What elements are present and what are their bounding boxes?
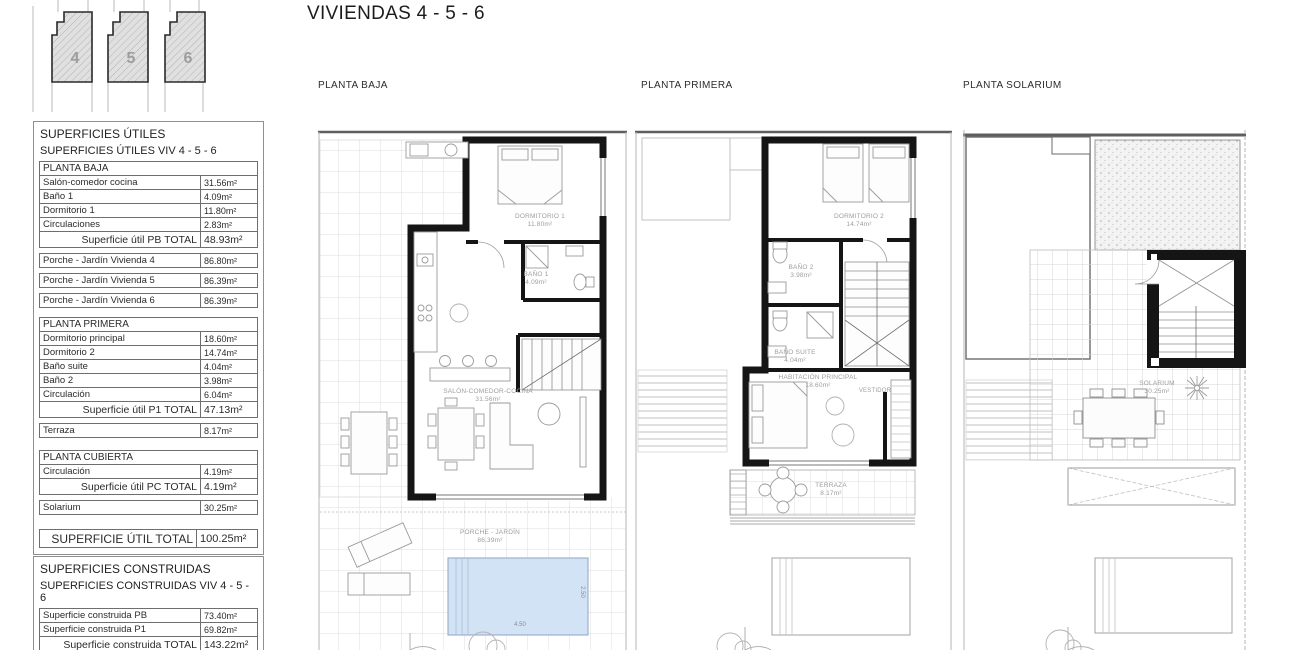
room-area: 4.04m² [784, 357, 806, 364]
room-label: HABITACIÓN PRINCIPAL [779, 372, 858, 381]
table-total-row: Superficie construida TOTAL143.22m² [40, 636, 257, 650]
dining-table [438, 408, 474, 460]
table-row: Superficie construida PB73.40m² [40, 609, 257, 622]
room-area: 8.17m² [820, 490, 842, 497]
plan-title-solarium: PLANTA SOLARIUM [963, 80, 1062, 91]
outdoor-table [351, 412, 387, 474]
stair-bulkhead [1135, 250, 1246, 368]
table-row: Solarium30.25m² [40, 501, 257, 514]
table-row: Dormitorio 214.74m² [40, 345, 257, 359]
room-area: 31.56m² [475, 396, 501, 403]
table-row: Baño 23.98m² [40, 373, 257, 387]
garden-gate [745, 627, 771, 650]
pool: 4.50 2.50 [448, 558, 588, 635]
pool-outline [1095, 558, 1232, 633]
plan-title-baja: PLANTA BAJA [318, 80, 388, 91]
room-area: 86.39m² [477, 537, 503, 544]
pool-width-dim: 2.50 [579, 586, 585, 598]
floor-plan-primera: DORMITORIO 2 14.74m² BAÑO 2 3.98m² BAÑO … [635, 130, 953, 650]
planter [730, 470, 746, 515]
table-row: Baño 14.09m² [40, 189, 257, 203]
pergola [1068, 468, 1235, 505]
table-row: Dormitorio 111.80m² [40, 203, 257, 217]
plan-title-primera: PLANTA PRIMERA [641, 80, 733, 91]
floor-plan-solarium: SOLARIUM 30.25m² [963, 130, 1247, 650]
floor-plan-baja: 4.50 2.50 DORMITORIO 1 11.80m² BAÑO 1 4.… [318, 130, 628, 650]
unit-6-footprint [165, 12, 205, 82]
room-label: SALÓN-COMEDOR-COCINA [443, 386, 533, 395]
neighbor-roof-hatch [638, 370, 727, 452]
table-title: SUPERFICIES CONSTRUIDAS [39, 560, 258, 577]
room-area: 11.80m² [528, 221, 553, 228]
unit-4-number: 4 [71, 50, 80, 67]
roof-outline [730, 138, 763, 170]
site-plan: 4 5 6 [25, 0, 235, 112]
pool-outline [772, 558, 910, 635]
table-total-row: Superficie útil PC TOTAL4.19m² [40, 478, 257, 494]
room-area: 14.74m² [846, 221, 872, 228]
roof-outline [1052, 137, 1090, 154]
superficies-construidas-table: SUPERFICIES CONSTRUIDAS SUPERFICIES CONS… [33, 556, 264, 650]
bed [498, 146, 562, 204]
round-table [770, 477, 796, 503]
table-row: Circulación4.19m² [40, 464, 257, 478]
room-label: BAÑO 1 [523, 269, 548, 278]
room-area: 30.25m² [1144, 388, 1170, 395]
room-label: VESTIDOR [859, 388, 892, 394]
gravel-area [1095, 140, 1240, 250]
table-row: Circulaciones2.83m² [40, 217, 257, 231]
table-title: SUPERFICIES ÚTILES [39, 125, 258, 142]
double-bed [749, 382, 807, 448]
unit-6-number: 6 [184, 50, 193, 67]
table-row: Superficie construida P169.82m² [40, 622, 257, 636]
room-label: PORCHE - JARDÍN [460, 527, 520, 536]
table-row: Circulación6.04m² [40, 387, 257, 401]
table-row: Terraza8.17m² [40, 424, 257, 437]
table-row: Baño suite4.04m² [40, 359, 257, 373]
superficies-utiles-table: SUPERFICIES ÚTILES SUPERFICIES ÚTILES VI… [33, 121, 264, 555]
room-area: 4.09m² [525, 279, 547, 286]
table-row: PLANTA BAJA [40, 162, 257, 175]
stairs [522, 339, 601, 390]
table-subtitle: SUPERFICIES ÚTILES VIV 4 - 5 - 6 [39, 142, 258, 161]
tv-sideboard [580, 397, 586, 467]
table-row: Dormitorio principal18.60m² [40, 331, 257, 345]
stairs [845, 262, 909, 366]
plan-sheet: 4 5 6 VIVIENDAS 4 - 5 - 6 PLANTA BAJA PL… [0, 0, 1291, 650]
sun-lounger [348, 573, 410, 595]
table-row: PLANTA PRIMERA [40, 318, 257, 331]
table-row: Porche - Jardín Vivienda 486.80m² [40, 254, 257, 267]
table-row: Salón-comedor cocina31.56m² [40, 175, 257, 189]
table-row: PLANTA CUBIERTA [40, 451, 257, 464]
table-total-row: Superficie útil P1 TOTAL47.13m² [40, 401, 257, 417]
kitchen-island [430, 368, 510, 381]
solarium-table [1074, 389, 1164, 447]
kitchen-counter [414, 232, 437, 352]
roof-outline [642, 138, 730, 220]
terrace-steps [730, 518, 915, 524]
table-subtitle: SUPERFICIES CONSTRUIDAS VIV 4 - 5 - 6 [39, 577, 258, 608]
unit-4-footprint [52, 12, 92, 82]
table-row: Porche - Jardín Vivienda 586.39m² [40, 274, 257, 287]
pool-length-dim: 4.50 [514, 622, 526, 628]
room-label: DORMITORIO 1 [515, 213, 565, 220]
tree [717, 633, 751, 650]
unit-footprints [52, 12, 205, 82]
room-label: BAÑO SUITE [774, 347, 816, 356]
room-area: 18.60m² [805, 382, 831, 389]
room-label: TERRAZA [815, 482, 847, 489]
page-title: VIVIENDAS 4 - 5 - 6 [307, 3, 485, 25]
table-grand-total-row: SUPERFICIE ÚTIL TOTAL100.25m² [40, 530, 257, 547]
room-area: 3.98m² [790, 272, 812, 279]
unit-5-footprint [108, 12, 148, 82]
room-label: BAÑO 2 [788, 262, 813, 271]
table-total-row: Superficie útil PB TOTAL48.93m² [40, 231, 257, 247]
unit-5-number: 5 [127, 50, 136, 67]
table-row: Porche - Jardín Vivienda 686.39m² [40, 294, 257, 307]
room-label: DORMITORIO 2 [834, 213, 884, 220]
wardrobe [891, 380, 911, 458]
room-label: SOLARIUM [1139, 380, 1175, 387]
